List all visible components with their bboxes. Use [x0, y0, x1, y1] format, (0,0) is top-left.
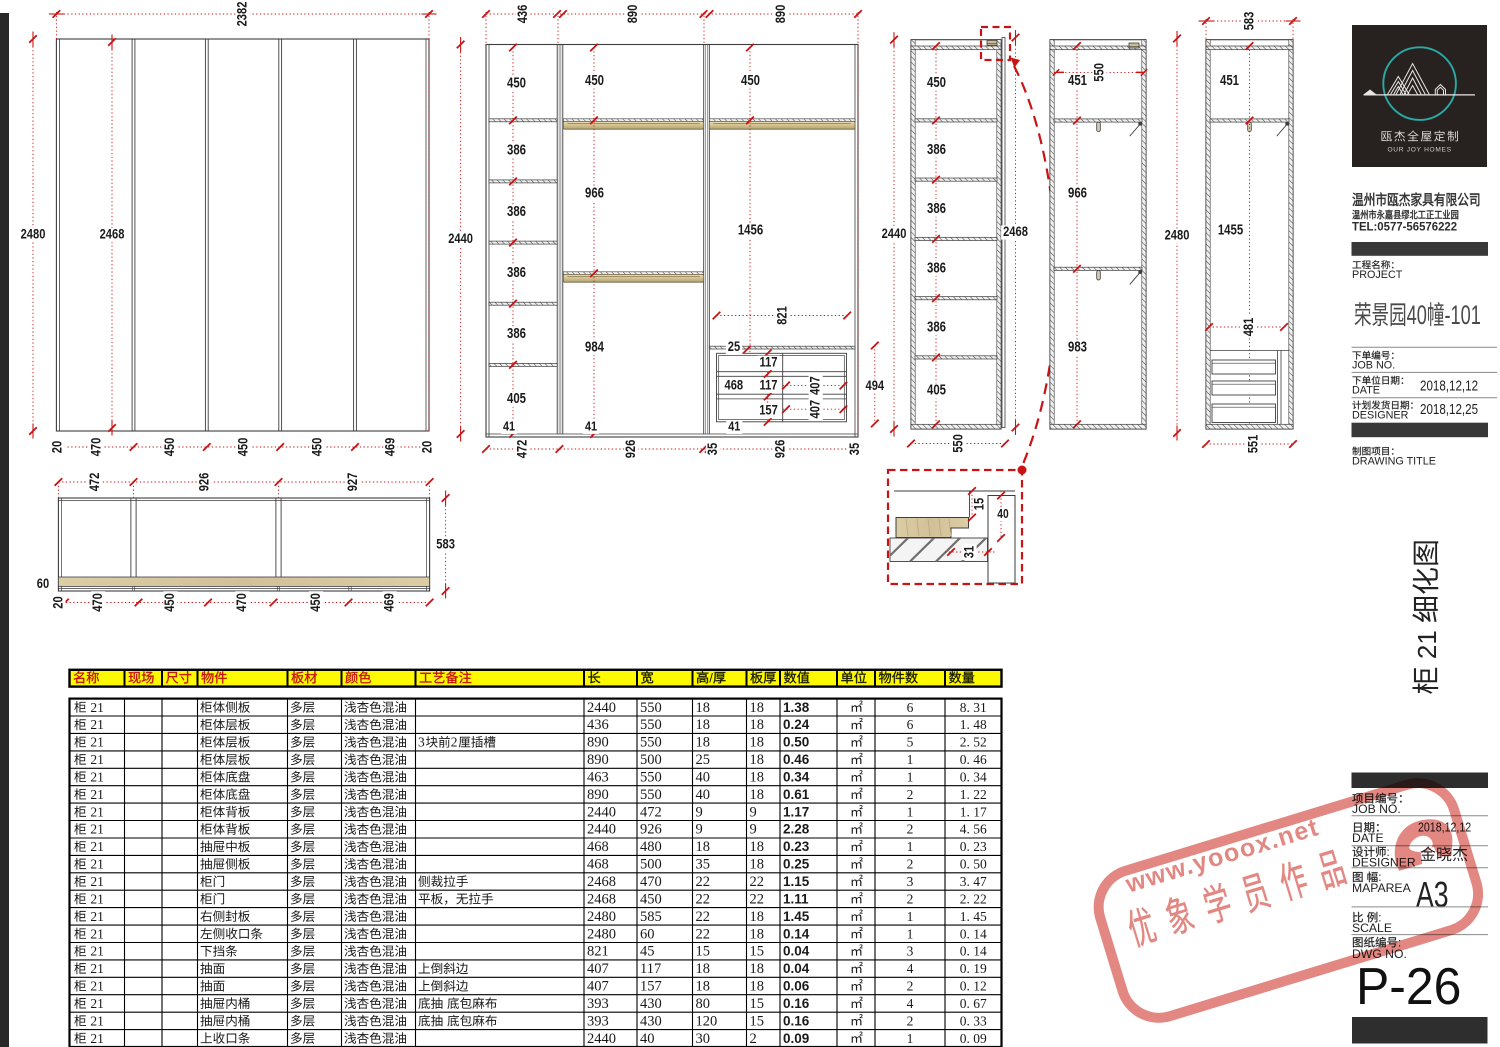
svg-text:1.17: 1.17 — [783, 804, 809, 819]
svg-text:41: 41 — [728, 418, 740, 433]
svg-text:1.38: 1.38 — [783, 700, 810, 715]
svg-text:926: 926 — [196, 473, 211, 492]
svg-text:984: 984 — [585, 338, 605, 355]
svg-text:2018,12,25: 2018,12,25 — [1420, 401, 1478, 418]
svg-text:4: 4 — [907, 961, 914, 976]
svg-text:2.28: 2.28 — [783, 822, 810, 837]
svg-text:18: 18 — [750, 961, 765, 977]
svg-text:A3: A3 — [1416, 874, 1449, 915]
svg-text:20: 20 — [419, 441, 434, 453]
svg-text:35: 35 — [705, 443, 720, 455]
svg-text:0.04: 0.04 — [783, 944, 810, 959]
svg-text:21: 21 — [90, 769, 104, 784]
svg-text:DATE: DATE — [1352, 831, 1384, 845]
svg-text:18: 18 — [750, 909, 765, 925]
svg-text:0.06: 0.06 — [783, 979, 810, 994]
svg-text:0.34: 0.34 — [783, 769, 810, 784]
svg-text:21: 21 — [90, 874, 104, 889]
svg-text:821: 821 — [587, 944, 609, 960]
svg-text:2: 2 — [907, 979, 914, 994]
svg-text:450: 450 — [640, 891, 662, 907]
svg-text:494: 494 — [866, 378, 885, 393]
svg-text:407: 407 — [587, 979, 609, 995]
svg-text:1: 1 — [907, 769, 914, 784]
svg-text:117: 117 — [760, 354, 778, 369]
svg-text:6: 6 — [907, 717, 914, 732]
svg-text:386: 386 — [507, 141, 526, 158]
svg-text:386: 386 — [927, 259, 946, 276]
svg-text:20: 20 — [50, 596, 65, 608]
svg-text:2480: 2480 — [587, 909, 616, 925]
svg-text:21: 21 — [90, 822, 104, 837]
svg-text:480: 480 — [640, 839, 662, 855]
svg-text:0. 23: 0. 23 — [960, 839, 987, 854]
svg-text:3: 3 — [418, 735, 425, 750]
svg-text:21: 21 — [90, 857, 104, 872]
svg-text:2: 2 — [907, 787, 914, 802]
svg-text:22: 22 — [750, 891, 765, 907]
svg-text:0.09: 0.09 — [783, 1031, 809, 1046]
svg-text:31: 31 — [961, 546, 976, 558]
svg-text:450: 450 — [507, 74, 526, 91]
svg-text:386: 386 — [507, 202, 526, 219]
svg-text:22: 22 — [696, 909, 711, 925]
svg-text:2440: 2440 — [587, 822, 616, 838]
svg-text:21: 21 — [90, 996, 104, 1011]
svg-text:450: 450 — [927, 74, 946, 91]
svg-text:0.23: 0.23 — [783, 839, 810, 854]
svg-text:TEL:0577-56576222: TEL:0577-56576222 — [1352, 220, 1458, 233]
svg-text:0.46: 0.46 — [783, 752, 810, 767]
svg-text:386: 386 — [927, 318, 946, 335]
svg-text:436: 436 — [515, 5, 530, 24]
svg-text:2468: 2468 — [100, 227, 125, 242]
svg-text:20: 20 — [50, 441, 65, 453]
svg-text:3. 47: 3. 47 — [960, 874, 987, 889]
svg-text:15: 15 — [971, 498, 986, 510]
svg-text:0.16: 0.16 — [783, 1013, 810, 1028]
svg-text:21: 21 — [90, 909, 104, 924]
svg-text:1: 1 — [907, 926, 914, 941]
svg-text:469: 469 — [382, 438, 397, 457]
svg-text:18: 18 — [696, 735, 711, 751]
svg-text:2: 2 — [907, 857, 914, 872]
svg-text:1. 48: 1. 48 — [960, 717, 987, 732]
svg-text:40: 40 — [997, 508, 1008, 521]
svg-text:926: 926 — [623, 440, 638, 459]
svg-text:60: 60 — [37, 576, 49, 591]
svg-text:0. 14: 0. 14 — [960, 926, 987, 941]
svg-text:0. 33: 0. 33 — [960, 1013, 987, 1028]
svg-text:0.61: 0.61 — [783, 787, 810, 802]
svg-text:2468: 2468 — [587, 891, 616, 907]
svg-text:927: 927 — [345, 473, 360, 492]
svg-text:18: 18 — [750, 700, 765, 716]
svg-text:DRAWING TITLE: DRAWING TITLE — [1352, 456, 1436, 468]
svg-text:472: 472 — [87, 473, 102, 492]
svg-text:470: 470 — [234, 593, 249, 612]
svg-text:550: 550 — [640, 700, 662, 716]
svg-text:35: 35 — [696, 857, 711, 873]
svg-text:386: 386 — [927, 140, 946, 157]
svg-text:550: 550 — [640, 787, 662, 803]
svg-text:0.50: 0.50 — [783, 735, 809, 750]
svg-text:21: 21 — [90, 961, 104, 976]
svg-text:550: 550 — [1091, 63, 1106, 82]
svg-text:450: 450 — [235, 438, 250, 457]
svg-text:30: 30 — [696, 1031, 711, 1047]
svg-text:407: 407 — [587, 961, 609, 977]
svg-text:18: 18 — [750, 769, 765, 785]
svg-text:18: 18 — [696, 839, 711, 855]
svg-text:15: 15 — [750, 1013, 765, 1029]
svg-text:1456: 1456 — [738, 221, 763, 238]
svg-text:983: 983 — [1068, 338, 1087, 355]
svg-text:15: 15 — [750, 996, 765, 1012]
svg-text:21: 21 — [90, 926, 104, 941]
svg-text:1: 1 — [907, 1031, 914, 1046]
svg-text:0. 14: 0. 14 — [960, 944, 987, 959]
svg-text:551: 551 — [1245, 435, 1260, 454]
svg-text:21: 21 — [90, 735, 104, 750]
svg-text:0.16: 0.16 — [783, 996, 810, 1011]
svg-text:/: / — [709, 670, 713, 685]
svg-text:470: 470 — [90, 593, 105, 612]
svg-text:0. 09: 0. 09 — [960, 1031, 987, 1046]
svg-text:405: 405 — [507, 390, 526, 407]
svg-text:0.24: 0.24 — [783, 717, 810, 732]
svg-text:585: 585 — [640, 909, 662, 925]
svg-text:40: 40 — [640, 1031, 655, 1047]
svg-text:41: 41 — [585, 418, 597, 433]
svg-text:18: 18 — [696, 961, 711, 977]
svg-text:583: 583 — [1241, 12, 1256, 31]
svg-text:1: 1 — [907, 839, 914, 854]
svg-text:21: 21 — [90, 717, 104, 732]
svg-text:1: 1 — [907, 909, 914, 924]
svg-text:1. 17: 1. 17 — [960, 804, 987, 819]
svg-text:890: 890 — [587, 752, 609, 768]
svg-text:890: 890 — [773, 5, 788, 24]
svg-text:21: 21 — [90, 752, 104, 767]
svg-text:18: 18 — [750, 787, 765, 803]
svg-text:2: 2 — [451, 735, 458, 750]
svg-text:21: 21 — [90, 891, 104, 906]
svg-text:41: 41 — [503, 418, 515, 433]
svg-text:DESIGNER: DESIGNER — [1352, 409, 1409, 421]
svg-text:1.15: 1.15 — [783, 874, 810, 889]
svg-text:0. 34: 0. 34 — [960, 769, 987, 784]
svg-text:18: 18 — [750, 839, 765, 855]
svg-text:P-26: P-26 — [1356, 957, 1461, 1015]
svg-text:450: 450 — [309, 438, 324, 457]
svg-text:9: 9 — [750, 804, 757, 820]
svg-text:450: 450 — [162, 593, 177, 612]
svg-text:469: 469 — [381, 593, 396, 612]
svg-text:2468: 2468 — [587, 874, 616, 890]
svg-text:OUR JOY HOMES: OUR JOY HOMES — [1387, 147, 1451, 154]
svg-text:18: 18 — [750, 926, 765, 942]
svg-text:21: 21 — [90, 979, 104, 994]
svg-text:45: 45 — [640, 944, 655, 960]
svg-text:5: 5 — [907, 735, 914, 750]
svg-text:2. 52: 2. 52 — [960, 735, 987, 750]
svg-text:1: 1 — [907, 804, 914, 819]
svg-text:0.14: 0.14 — [783, 926, 810, 941]
svg-text:407: 407 — [807, 400, 822, 419]
svg-text:0. 19: 0. 19 — [960, 961, 987, 976]
svg-text:4. 56: 4. 56 — [960, 822, 987, 837]
svg-text:1.45: 1.45 — [783, 909, 810, 924]
svg-text:21: 21 — [90, 804, 104, 819]
svg-text:2440: 2440 — [587, 804, 616, 820]
svg-text:500: 500 — [640, 752, 662, 768]
svg-text:9: 9 — [696, 822, 703, 838]
svg-text:2: 2 — [750, 1031, 757, 1047]
svg-text:40: 40 — [696, 787, 711, 803]
svg-text:926: 926 — [640, 822, 662, 838]
svg-text:2440: 2440 — [587, 1031, 616, 1047]
svg-text:21: 21 — [90, 839, 104, 854]
svg-text:926: 926 — [772, 440, 787, 459]
svg-text:2480: 2480 — [1165, 227, 1190, 242]
svg-text:JOB NO.: JOB NO. — [1352, 360, 1395, 372]
svg-text:472: 472 — [514, 440, 529, 459]
svg-text:436: 436 — [587, 717, 609, 733]
svg-text:393: 393 — [587, 996, 609, 1012]
svg-text:21: 21 — [90, 944, 104, 959]
svg-text:22: 22 — [696, 926, 711, 942]
svg-text:1455: 1455 — [1218, 221, 1243, 238]
svg-text:21: 21 — [90, 1013, 104, 1028]
svg-text:472: 472 — [640, 804, 662, 820]
svg-text:117: 117 — [760, 377, 778, 392]
svg-text:0. 46: 0. 46 — [960, 752, 987, 767]
svg-text:25: 25 — [696, 752, 711, 768]
svg-text:21: 21 — [90, 787, 104, 802]
svg-text:9: 9 — [750, 822, 757, 838]
svg-text:405: 405 — [927, 381, 946, 398]
svg-text:18: 18 — [696, 979, 711, 995]
svg-text:450: 450 — [741, 71, 760, 88]
svg-text:9: 9 — [696, 804, 703, 820]
svg-text:583: 583 — [436, 537, 455, 552]
svg-text:35: 35 — [847, 443, 862, 455]
svg-text:407: 407 — [807, 376, 822, 395]
svg-text:430: 430 — [640, 1013, 662, 1029]
svg-text:3: 3 — [907, 944, 914, 959]
svg-text:18: 18 — [696, 700, 711, 716]
svg-text:450: 450 — [308, 593, 323, 612]
svg-text:18: 18 — [750, 979, 765, 995]
svg-text:393: 393 — [587, 1013, 609, 1029]
svg-text:468: 468 — [587, 839, 609, 855]
svg-text:1: 1 — [907, 752, 914, 767]
svg-text:470: 470 — [88, 438, 103, 457]
svg-text:15: 15 — [750, 944, 765, 960]
svg-text:22: 22 — [696, 891, 711, 907]
svg-text:500: 500 — [640, 857, 662, 873]
svg-text:0. 67: 0. 67 — [960, 996, 987, 1011]
svg-text:PROJECT: PROJECT — [1352, 269, 1403, 281]
svg-text:0.04: 0.04 — [783, 961, 810, 976]
svg-text:386: 386 — [507, 264, 526, 281]
svg-text:MAPAREA: MAPAREA — [1352, 881, 1412, 895]
svg-text:550: 550 — [640, 735, 662, 751]
svg-text:21: 21 — [1412, 630, 1442, 659]
svg-text:18: 18 — [696, 717, 711, 733]
svg-text:22: 22 — [696, 874, 711, 890]
svg-text:120: 120 — [696, 1013, 718, 1029]
svg-text:0. 12: 0. 12 — [960, 979, 987, 994]
svg-text:-101: -101 — [1444, 299, 1480, 329]
svg-text:60: 60 — [640, 926, 655, 942]
svg-text:890: 890 — [587, 787, 609, 803]
svg-text:890: 890 — [587, 735, 609, 751]
svg-text:117: 117 — [640, 961, 661, 977]
svg-text:386: 386 — [927, 200, 946, 217]
svg-text:451: 451 — [1220, 71, 1239, 88]
svg-text:2480: 2480 — [587, 926, 616, 942]
svg-text:2440: 2440 — [882, 226, 907, 241]
svg-text:890: 890 — [625, 5, 640, 24]
svg-text:18: 18 — [750, 717, 765, 733]
svg-text:25: 25 — [728, 339, 740, 354]
svg-text:2018,12,12: 2018,12,12 — [1420, 377, 1478, 394]
svg-text:2468: 2468 — [1003, 224, 1028, 239]
svg-text:18: 18 — [750, 735, 765, 751]
svg-text:966: 966 — [1068, 184, 1087, 201]
svg-text:468: 468 — [587, 857, 609, 873]
svg-text:18: 18 — [750, 857, 765, 873]
svg-text:22: 22 — [750, 874, 765, 890]
svg-text:1. 45: 1. 45 — [960, 909, 987, 924]
svg-text:463: 463 — [587, 769, 609, 785]
svg-text:450: 450 — [162, 438, 177, 457]
svg-text:21: 21 — [90, 1031, 104, 1046]
svg-text:SCALE: SCALE — [1352, 921, 1392, 935]
svg-text:550: 550 — [640, 717, 662, 733]
svg-text:40: 40 — [1407, 299, 1427, 329]
svg-text:4: 4 — [907, 996, 914, 1011]
svg-text:2: 2 — [907, 1013, 914, 1028]
svg-text:451: 451 — [1068, 71, 1087, 88]
svg-text:550: 550 — [950, 434, 965, 453]
svg-text:80: 80 — [696, 996, 711, 1012]
svg-text:157: 157 — [759, 403, 778, 418]
svg-text:15: 15 — [696, 944, 711, 960]
svg-text:468: 468 — [725, 377, 744, 392]
svg-text:386: 386 — [507, 325, 526, 342]
svg-text:0.25: 0.25 — [783, 857, 810, 872]
svg-text:1.11: 1.11 — [783, 891, 809, 906]
svg-text:157: 157 — [640, 979, 662, 995]
svg-text:450: 450 — [585, 71, 604, 88]
svg-text:2382: 2382 — [234, 2, 249, 27]
svg-text:481: 481 — [1241, 318, 1256, 337]
svg-text:430: 430 — [640, 996, 662, 1012]
svg-text:40: 40 — [696, 769, 711, 785]
svg-text:2440: 2440 — [448, 231, 473, 246]
svg-text:3: 3 — [907, 874, 914, 889]
svg-text:18: 18 — [750, 752, 765, 768]
svg-text:0. 50: 0. 50 — [960, 857, 987, 872]
svg-text:966: 966 — [585, 184, 604, 201]
svg-text:DATE: DATE — [1352, 384, 1380, 396]
svg-text:1. 22: 1. 22 — [960, 787, 987, 802]
svg-text:2. 22: 2. 22 — [960, 891, 987, 906]
svg-text:2480: 2480 — [21, 227, 46, 242]
svg-text:2: 2 — [907, 822, 914, 837]
svg-text:470: 470 — [640, 874, 662, 890]
svg-text:21: 21 — [90, 700, 104, 715]
svg-text:6: 6 — [907, 700, 914, 715]
svg-text:8. 31: 8. 31 — [960, 700, 987, 715]
svg-text:2440: 2440 — [587, 700, 616, 716]
svg-text:2: 2 — [907, 891, 914, 906]
svg-text:821: 821 — [774, 306, 789, 325]
svg-text:550: 550 — [640, 769, 662, 785]
